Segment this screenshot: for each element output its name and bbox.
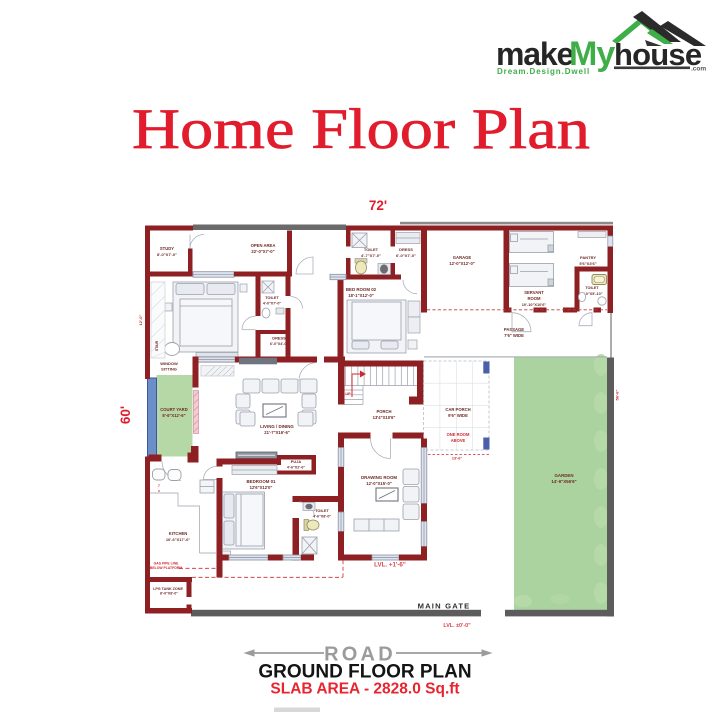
svg-text:CAR PORCH: CAR PORCH	[445, 407, 470, 412]
svg-text:14'-6"X56'6": 14'-6"X56'6"	[551, 479, 576, 484]
svg-text:72': 72'	[369, 198, 387, 213]
svg-text:PANTRY: PANTRY	[580, 255, 596, 260]
svg-text:PUJA: PUJA	[291, 459, 302, 464]
svg-text:KITCHEN: KITCHEN	[169, 531, 188, 536]
svg-text:18'-1"X12'-0": 18'-1"X12'-0"	[348, 293, 374, 298]
svg-text:LVL. ±0'-0": LVL. ±0'-0"	[443, 623, 471, 629]
svg-text:UP: UP	[345, 392, 351, 396]
svg-text:4'-6"X8'-0": 4'-6"X8'-0"	[313, 515, 332, 519]
svg-text:10'-10"X10'6": 10'-10"X10'6"	[522, 302, 547, 307]
svg-text:8'-0"X7'-0": 8'-0"X7'-0"	[157, 252, 177, 257]
svg-text:STUDY: STUDY	[160, 246, 174, 251]
svg-text:9'6" WIDE: 9'6" WIDE	[448, 413, 468, 418]
svg-text:12'-0"X12'-0": 12'-0"X12'-0"	[449, 261, 475, 266]
svg-text:SITTING: SITTING	[161, 367, 177, 372]
svg-text:LIVING / DINING: LIVING / DINING	[260, 424, 294, 429]
svg-text:.com: .com	[691, 66, 706, 73]
svg-text:DRESS: DRESS	[272, 336, 286, 341]
svg-text:13'-6": 13'-6"	[452, 457, 463, 461]
svg-text:SERVANT: SERVANT	[524, 290, 544, 295]
svg-text:COURT YARD: COURT YARD	[160, 407, 187, 412]
svg-text:22'-0"X7'-0": 22'-0"X7'-0"	[251, 249, 274, 254]
svg-text:8'-6"X12'-6": 8'-6"X12'-6"	[162, 413, 185, 418]
svg-text:TOILET: TOILET	[265, 295, 279, 300]
svg-text:LVL. +1'-6": LVL. +1'-6"	[374, 562, 406, 569]
svg-text:10'-6"X17'-6": 10'-6"X17'-6"	[166, 537, 190, 542]
svg-text:4'-6"X2'-6": 4'-6"X2'-6"	[287, 465, 306, 469]
svg-text:60': 60'	[118, 406, 133, 424]
svg-text:13'4"X10'6": 13'4"X10'6"	[373, 415, 396, 420]
svg-text:PORCH: PORCH	[376, 409, 391, 414]
svg-text:7'6" WIDE: 7'6" WIDE	[504, 333, 524, 338]
svg-text:WINDOW: WINDOW	[160, 361, 178, 366]
svg-text:BEDROOM 01: BEDROOM 01	[246, 479, 276, 484]
svg-text:4'-7"X7'-0": 4'-7"X7'-0"	[361, 253, 381, 258]
svg-text:12'-0": 12'-0"	[138, 314, 143, 325]
svg-text:SLAB AREA - 2828.0 Sq.ft: SLAB AREA - 2828.0 Sq.ft	[270, 681, 459, 698]
svg-text:GROUND FLOOR PLAN: GROUND FLOOR PLAN	[258, 662, 471, 683]
svg-text:MAIN GATE: MAIN GATE	[418, 602, 471, 611]
svg-text:56'-6": 56'-6"	[615, 389, 620, 400]
svg-text:5'6"X3'6": 5'6"X3'6"	[579, 261, 596, 266]
svg-text:STAIR: STAIR	[155, 340, 159, 351]
svg-text:12'6"X12'0": 12'6"X12'0"	[250, 485, 273, 490]
svg-text:ONE ROOM: ONE ROOM	[447, 432, 470, 437]
svg-text:GARAGE: GARAGE	[453, 255, 472, 260]
svg-text:TOILET: TOILET	[585, 286, 599, 290]
svg-text:ROOM: ROOM	[527, 296, 541, 301]
svg-text:4'-0"X7'-0": 4'-0"X7'-0"	[263, 302, 282, 306]
svg-text:7: 7	[158, 484, 160, 488]
svg-text:12'-0"X15'-0": 12'-0"X15'-0"	[366, 481, 392, 486]
svg-text:Dream.Design.Dwell: Dream.Design.Dwell	[497, 67, 590, 76]
svg-text:GARDEN: GARDEN	[554, 473, 573, 478]
svg-text:BED ROOM 02: BED ROOM 02	[346, 287, 377, 292]
svg-text:8'-0"X8'-0": 8'-0"X8'-0"	[160, 592, 178, 596]
svg-text:OPEN AREA: OPEN AREA	[251, 243, 276, 248]
svg-text:Home Floor Plan: Home Floor Plan	[132, 98, 590, 161]
svg-text:DRAWING ROOM: DRAWING ROOM	[361, 475, 397, 480]
svg-text:21'-7"X16'-6": 21'-7"X16'-6"	[264, 430, 290, 435]
svg-text:6'-0"X7'-0": 6'-0"X7'-0"	[396, 253, 416, 258]
svg-text:LPG TANK ZONE: LPG TANK ZONE	[153, 587, 183, 591]
svg-text:ABOVE: ABOVE	[451, 438, 466, 443]
svg-text:BELOW PLATFORM: BELOW PLATFORM	[150, 566, 182, 570]
svg-text:DRESS: DRESS	[399, 247, 413, 252]
svg-text:x: x	[158, 489, 160, 493]
svg-text:GAS PIPE LINE: GAS PIPE LINE	[154, 562, 179, 566]
svg-text:TOILET: TOILET	[315, 508, 329, 513]
svg-text:PASSAGE: PASSAGE	[504, 327, 524, 332]
